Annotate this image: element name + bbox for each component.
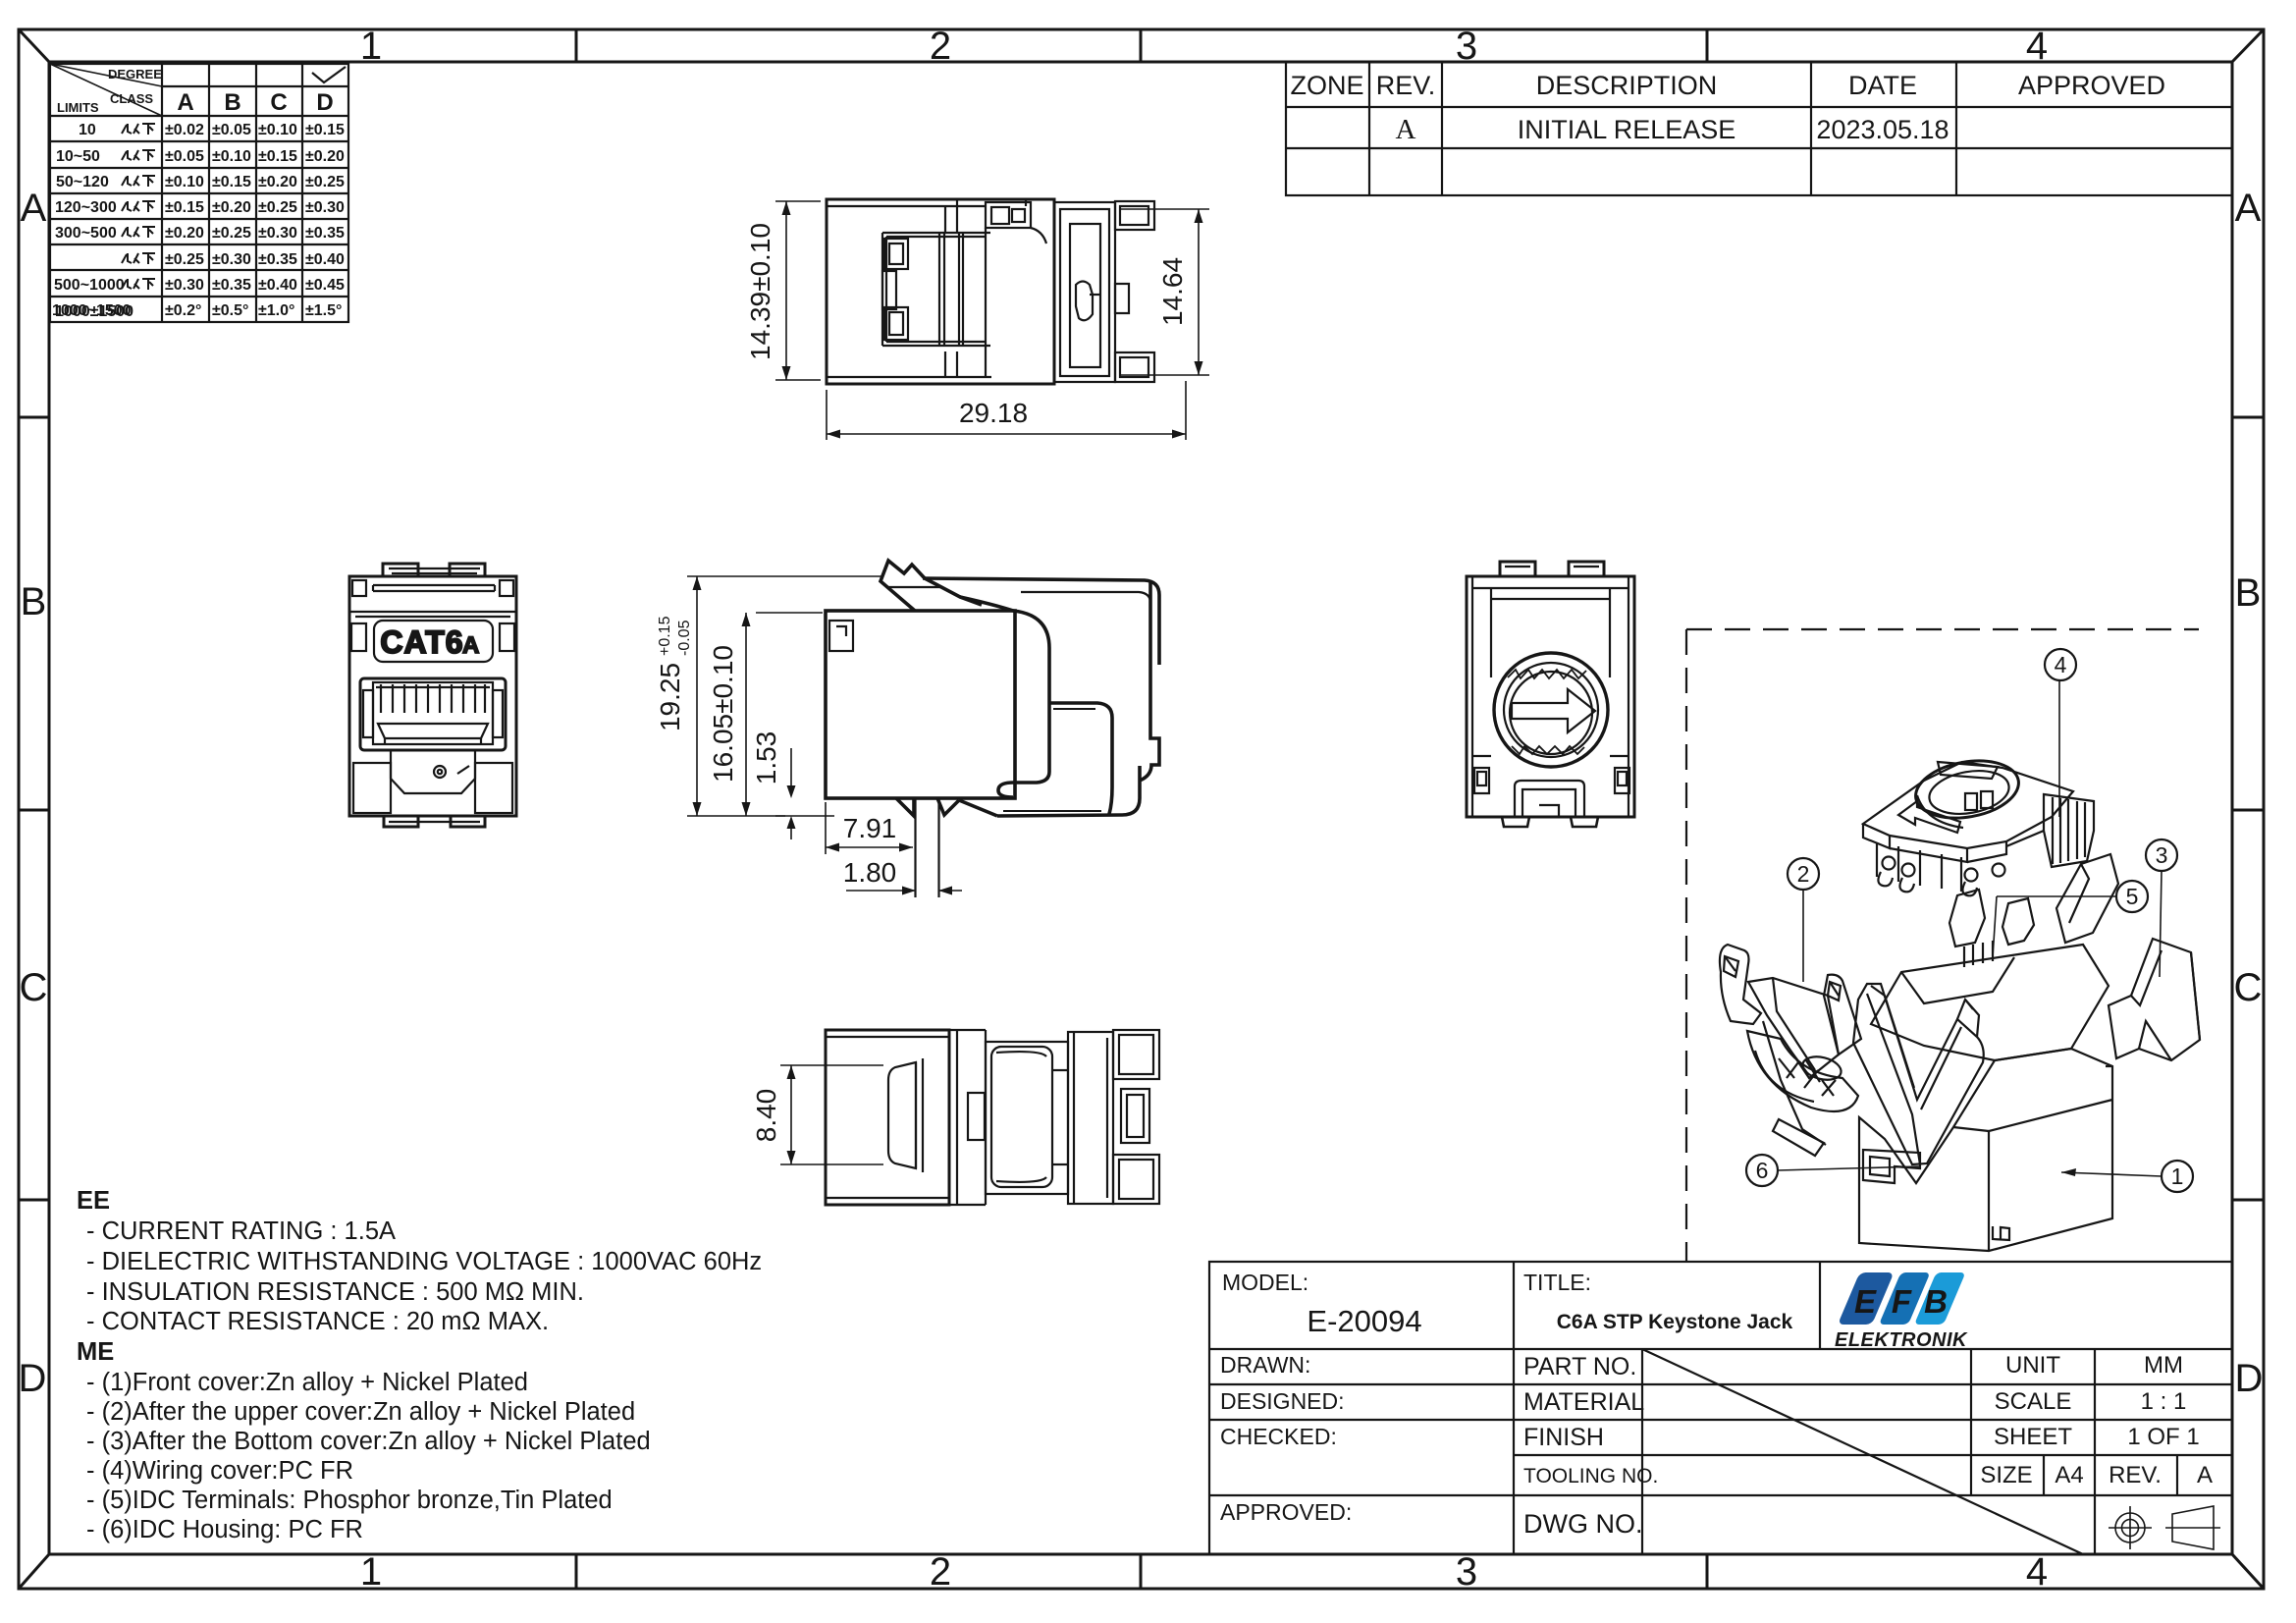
svg-text:29.18: 29.18 [959, 398, 1028, 428]
svg-text:A: A [2235, 187, 2262, 230]
svg-text:±0.20: ±0.20 [165, 225, 204, 242]
svg-text:PART NO.: PART NO. [1523, 1353, 1636, 1380]
svg-text:C: C [270, 89, 287, 116]
svg-text:A: A [2197, 1462, 2213, 1488]
svg-text:10~50: 10~50 [56, 148, 100, 165]
svg-text:A: A [462, 632, 479, 659]
svg-text:F: F [1892, 1283, 1912, 1320]
svg-text:+0.15: +0.15 [657, 616, 673, 656]
svg-text:±0.15: ±0.15 [165, 199, 204, 216]
svg-text:SCALE: SCALE [1995, 1388, 2072, 1415]
svg-text:REV.: REV. [1376, 71, 1436, 100]
svg-text:A: A [21, 187, 47, 230]
svg-text:B: B [1924, 1283, 1948, 1320]
svg-text:D: D [316, 89, 333, 116]
svg-text:DEGREE: DEGREE [108, 67, 162, 81]
svg-text:19.25: 19.25 [655, 663, 685, 731]
svg-text:3: 3 [2156, 842, 2168, 868]
svg-text:-0.05: -0.05 [676, 620, 693, 656]
svg-text:1.53: 1.53 [751, 731, 781, 785]
svg-text:±0.35: ±0.35 [305, 225, 345, 242]
svg-text:±0.25: ±0.25 [212, 225, 251, 242]
svg-text:2: 2 [930, 1550, 951, 1594]
svg-text:8.40: 8.40 [751, 1089, 781, 1143]
svg-text:6: 6 [1756, 1158, 1769, 1183]
svg-text:2: 2 [930, 25, 951, 68]
svg-text:1: 1 [2171, 1163, 2184, 1189]
svg-text:±0.5°: ±0.5° [212, 302, 248, 319]
svg-text:±0.15: ±0.15 [305, 122, 345, 138]
svg-text:±0.20: ±0.20 [305, 148, 345, 165]
svg-text:DWG NO.: DWG NO. [1523, 1509, 1643, 1539]
svg-text:50~120: 50~120 [56, 174, 109, 190]
svg-text:CHECKED:: CHECKED: [1220, 1424, 1337, 1449]
svg-text:10: 10 [79, 122, 96, 138]
svg-text:14.39±0.10: 14.39±0.10 [745, 223, 775, 360]
svg-text:4: 4 [2055, 652, 2067, 677]
svg-text:2: 2 [1797, 861, 1810, 887]
svg-text:4: 4 [2026, 1550, 2048, 1594]
svg-text:±1.0°: ±1.0° [258, 302, 294, 319]
svg-text:500~1000: 500~1000 [54, 277, 125, 294]
svg-text:- (1)Front cover:Zn alloy + Ni: - (1)Front cover:Zn alloy + Nickel Plate… [86, 1369, 528, 1396]
svg-text:C: C [2234, 966, 2263, 1009]
svg-text:- INSULATION RESISTANCE : 500: - INSULATION RESISTANCE : 500 MΩ MIN. [86, 1278, 584, 1306]
svg-text:APPROVED: APPROVED [2018, 71, 2165, 100]
svg-text:16.05±0.10: 16.05±0.10 [708, 645, 738, 783]
svg-text:UNIT: UNIT [2005, 1352, 2060, 1379]
svg-text:DATE: DATE [1848, 71, 1917, 100]
svg-text:ME: ME [77, 1338, 114, 1366]
svg-text:±0.45: ±0.45 [305, 277, 345, 294]
svg-text:5: 5 [2126, 884, 2139, 909]
svg-text:300~500: 300~500 [55, 225, 117, 242]
svg-text:MODEL:: MODEL: [1222, 1270, 1308, 1295]
svg-text:DESIGNED:: DESIGNED: [1220, 1388, 1345, 1414]
svg-text:CAT6: CAT6 [380, 624, 463, 660]
svg-text:B: B [2235, 571, 2262, 615]
svg-text:- DIELECTRIC WITHSTANDING VOLT: - DIELECTRIC WITHSTANDING VOLTAGE : 1000… [86, 1248, 762, 1275]
svg-text:2023.05.18: 2023.05.18 [1816, 115, 1949, 144]
svg-text:SHEET: SHEET [1994, 1424, 2072, 1450]
svg-text:- (4)Wiring cover:PC FR: - (4)Wiring cover:PC FR [86, 1457, 353, 1485]
svg-text:±0.30: ±0.30 [212, 251, 251, 268]
svg-text:ELEKTRONIK: ELEKTRONIK [1835, 1329, 1968, 1351]
svg-text:DRAWN:: DRAWN: [1220, 1352, 1310, 1378]
svg-text:±0.10: ±0.10 [258, 122, 297, 138]
svg-text:±0.30: ±0.30 [305, 199, 345, 216]
svg-text:±0.15: ±0.15 [212, 174, 251, 190]
svg-text:FINISH: FINISH [1523, 1424, 1604, 1451]
svg-text:ZONE: ZONE [1290, 71, 1363, 100]
svg-text:3: 3 [1456, 1550, 1477, 1594]
svg-text:B: B [21, 580, 47, 623]
svg-text:A: A [1396, 114, 1416, 145]
svg-text:B: B [224, 89, 240, 116]
svg-text:1 OF 1: 1 OF 1 [2127, 1424, 2199, 1450]
svg-text:±0.25: ±0.25 [165, 251, 204, 268]
svg-text:1000±1500: 1000±1500 [55, 303, 133, 320]
svg-text:±0.25: ±0.25 [305, 174, 345, 190]
svg-text:±0.05: ±0.05 [212, 122, 251, 138]
svg-text:A4: A4 [2055, 1462, 2083, 1488]
svg-text:E: E [1854, 1283, 1877, 1320]
svg-text:EE: EE [77, 1187, 110, 1215]
svg-text:14.64: 14.64 [1157, 257, 1188, 326]
svg-text:- (2)After the upper cover:Zn: - (2)After the upper cover:Zn alloy + Ni… [86, 1398, 635, 1426]
svg-text:INITIAL RELEASE: INITIAL RELEASE [1518, 115, 1736, 144]
svg-text:±0.40: ±0.40 [258, 277, 297, 294]
svg-text:A: A [177, 89, 193, 116]
svg-text:1 : 1: 1 : 1 [2141, 1388, 2187, 1415]
svg-text:±1.5°: ±1.5° [305, 302, 342, 319]
svg-text:±0.30: ±0.30 [165, 277, 204, 294]
svg-text:D: D [19, 1357, 47, 1400]
svg-text:1.80: 1.80 [843, 857, 897, 888]
svg-text:C6A STP Keystone Jack: C6A STP Keystone Jack [1557, 1311, 1793, 1333]
svg-text:±0.15: ±0.15 [258, 148, 297, 165]
svg-text:±0.10: ±0.10 [165, 174, 204, 190]
svg-text:1: 1 [360, 25, 382, 68]
svg-text:D: D [2235, 1357, 2264, 1400]
svg-text:±0.25: ±0.25 [258, 199, 297, 216]
svg-text:- (3)After the Bottom cover:Zn: - (3)After the Bottom cover:Zn alloy + N… [86, 1428, 651, 1455]
svg-text:TITLE:: TITLE: [1523, 1270, 1591, 1295]
svg-text:MATERIAL: MATERIAL [1523, 1388, 1644, 1416]
svg-text:1: 1 [360, 1550, 382, 1594]
svg-text:±0.2°: ±0.2° [165, 302, 201, 319]
svg-text:±0.20: ±0.20 [212, 199, 251, 216]
svg-text:±0.30: ±0.30 [258, 225, 297, 242]
svg-text:±0.02: ±0.02 [165, 122, 204, 138]
svg-text:SIZE: SIZE [1980, 1462, 2032, 1488]
svg-text:±0.10: ±0.10 [212, 148, 251, 165]
svg-text:120~300: 120~300 [55, 199, 117, 216]
svg-text:- CURRENT RATING : 1.5A: - CURRENT RATING : 1.5A [86, 1217, 396, 1245]
svg-text:±0.20: ±0.20 [258, 174, 297, 190]
svg-text:±0.35: ±0.35 [212, 277, 251, 294]
svg-text:DESCRIPTION: DESCRIPTION [1536, 71, 1718, 100]
svg-text:C: C [20, 966, 48, 1009]
svg-text:±0.35: ±0.35 [258, 251, 297, 268]
svg-text:CLASS: CLASS [110, 91, 153, 106]
svg-text:7.91: 7.91 [843, 813, 897, 843]
svg-text:- (6)IDC Housing: PC FR: - (6)IDC Housing: PC FR [86, 1516, 363, 1543]
svg-text:±0.40: ±0.40 [305, 251, 345, 268]
svg-text:APPROVED:: APPROVED: [1220, 1499, 1352, 1525]
svg-text:±0.05: ±0.05 [165, 148, 204, 165]
svg-text:- CONTACT RESISTANCE : 20 mΩ M: - CONTACT RESISTANCE : 20 mΩ MAX. [86, 1308, 549, 1335]
svg-text:- (5)IDC Terminals: Phosphor: - (5)IDC Terminals: Phosphor bronze,Tin … [86, 1487, 613, 1514]
svg-text:LIMITS: LIMITS [57, 100, 99, 115]
svg-text:MM: MM [2144, 1352, 2183, 1379]
svg-text:REV.: REV. [2109, 1462, 2162, 1488]
svg-text:E-20094: E-20094 [1307, 1304, 1421, 1338]
svg-text:TOOLING NO.: TOOLING NO. [1523, 1465, 1658, 1488]
